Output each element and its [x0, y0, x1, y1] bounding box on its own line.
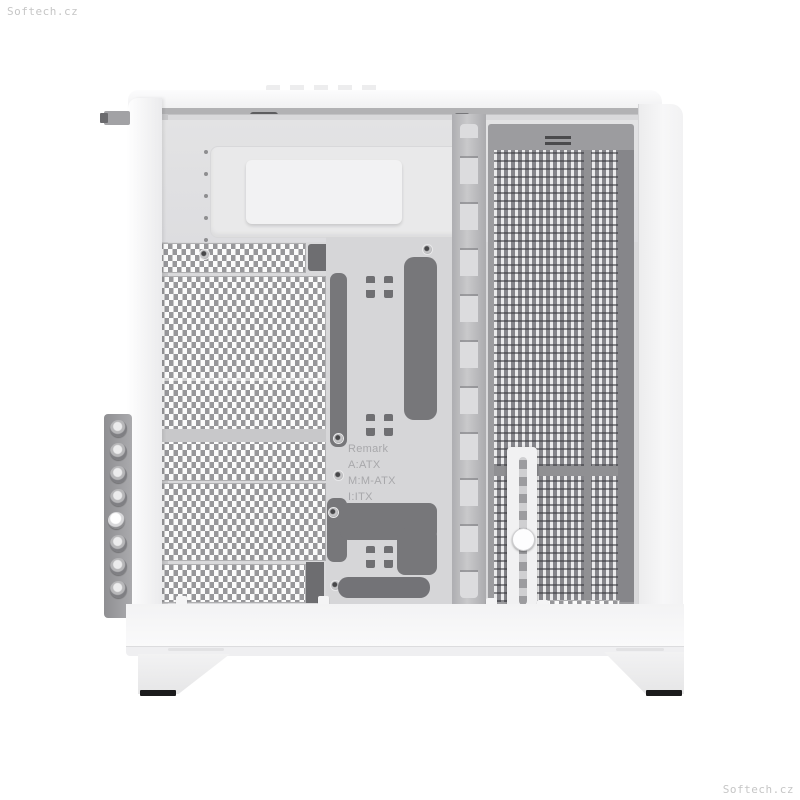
foot-pad-left	[140, 690, 176, 696]
front-panel-edge	[128, 98, 162, 652]
tray-screw	[423, 245, 432, 254]
tray-screw	[334, 471, 343, 480]
watermark-top-left: Softech.cz	[7, 5, 78, 18]
standoff-remark-text: Remark A:ATX M:M-ATX I:ITX	[348, 441, 396, 505]
case-foot-right	[604, 652, 684, 694]
cable-clip	[384, 276, 393, 298]
side-mesh-lower	[160, 483, 326, 561]
side-mesh-top-strip	[150, 243, 306, 273]
cable-clip	[366, 546, 375, 568]
cable-clip	[366, 276, 375, 298]
remark-title: Remark	[348, 441, 396, 457]
front-screw-hole	[204, 216, 208, 220]
front-screw-hole	[204, 238, 208, 242]
psu-cutout-leg	[397, 528, 437, 575]
rear-dark-column	[618, 150, 634, 602]
rear-exterior-band	[638, 104, 683, 648]
mesh-seam	[160, 378, 326, 381]
cable-cutout-vertical	[404, 257, 437, 420]
case-base	[126, 604, 684, 648]
remark-line-atx: A:ATX	[348, 457, 396, 473]
tray-screw	[329, 508, 338, 517]
front-thumbscrew-tip	[100, 113, 108, 123]
hinge-bolt	[110, 420, 127, 437]
cable-clip	[366, 414, 375, 436]
cable-clip	[384, 546, 393, 568]
front-screw-hole	[204, 172, 208, 176]
tray-screw	[334, 434, 343, 443]
gpu-bracket-thumbscrew	[512, 528, 535, 551]
cable-cutout-column-upper	[330, 273, 347, 447]
front-screw-hole	[204, 150, 208, 154]
case-foot-left	[138, 654, 230, 694]
front-panel-screw	[200, 250, 209, 259]
hinge-bolt	[110, 466, 127, 483]
rear-frame-mark	[545, 136, 571, 145]
mesh-seam-band	[160, 429, 326, 442]
pump-mount-plate-inner	[246, 160, 402, 224]
watermark-bottom-right: Softech.cz	[723, 783, 794, 796]
hinge-bolt	[110, 535, 127, 552]
base-notch	[616, 648, 664, 651]
psu-slot-horizontal	[338, 577, 430, 598]
front-screw-hole	[204, 194, 208, 198]
base-notch	[168, 648, 224, 651]
hinge-bolt	[110, 489, 127, 506]
hinge-bolt	[110, 558, 127, 575]
product-photo-pc-case: Softech.cz Softech.cz Remark A:ATX M:M-A…	[0, 0, 800, 800]
hinge-bolt	[108, 512, 125, 529]
remark-line-matx: M:M-ATX	[348, 473, 396, 489]
rear-mesh-vseam	[584, 150, 591, 602]
hinge-bolt	[110, 443, 127, 460]
cable-routing-bar	[452, 114, 486, 608]
cable-clip	[384, 414, 393, 436]
hinge-bolt	[110, 581, 127, 598]
foot-pad-right	[646, 690, 682, 696]
